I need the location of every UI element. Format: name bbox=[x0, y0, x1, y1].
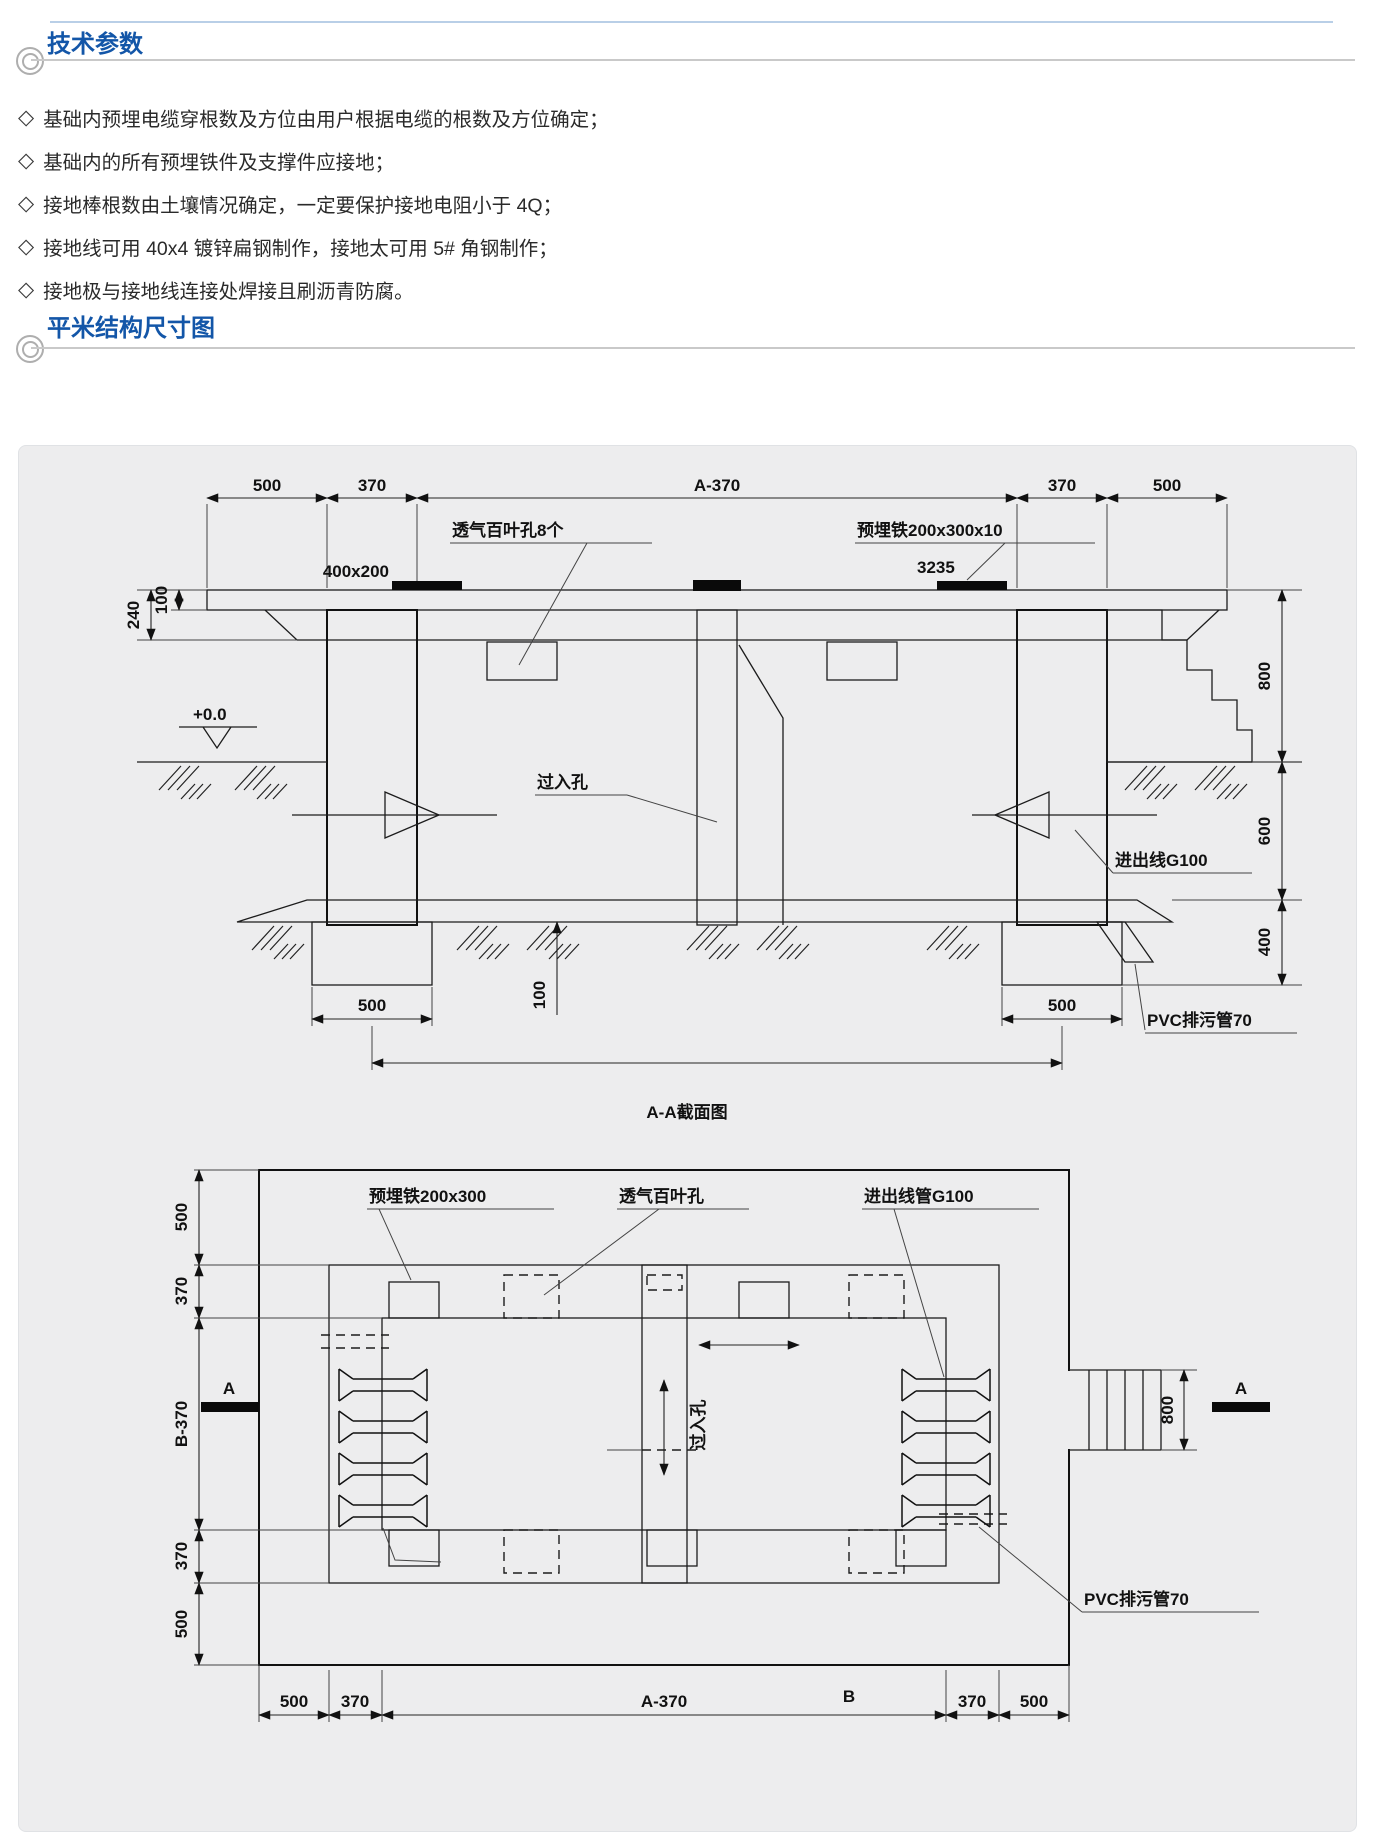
tech-params-list: ◇基础内预埋电缆穿根数及方位由用户根据电缆的根数及方位确定； ◇基础内的所有预埋… bbox=[18, 96, 609, 311]
bottom-dimension-chain: 500 500 bbox=[312, 987, 1122, 1070]
bottom-wall-elements bbox=[383, 1528, 946, 1573]
diamond-bullet-icon: ◇ bbox=[18, 234, 34, 259]
dim-800: 800 bbox=[1158, 1396, 1177, 1424]
section-marker-a-left: A bbox=[201, 1379, 259, 1412]
cable-spools-left bbox=[339, 1369, 427, 1527]
svg-text:370: 370 bbox=[172, 1277, 191, 1305]
access-label: 过入孔 bbox=[689, 1400, 708, 1451]
diamond-bullet-icon: ◇ bbox=[18, 191, 34, 216]
svg-text:500: 500 bbox=[172, 1203, 191, 1231]
slab-depth-dim: 100 bbox=[530, 922, 557, 1015]
dim-240: 240 bbox=[124, 601, 143, 629]
svg-text:500: 500 bbox=[1020, 1692, 1048, 1711]
svg-text:500: 500 bbox=[280, 1692, 308, 1711]
dim-100: 100 bbox=[152, 586, 171, 614]
dim-600: 600 bbox=[1255, 817, 1274, 845]
list-item: ◇接地棒根数由土壤情况确定，一定要保护接地电阻小于 4Q； bbox=[18, 182, 609, 225]
section-marker-b: B bbox=[843, 1687, 855, 1706]
dim-500-footing-left: 500 bbox=[358, 996, 386, 1015]
pvc-pipe bbox=[1097, 922, 1153, 962]
cable-sleeve-right bbox=[972, 792, 1157, 838]
drawing1-title: A-A截面图 bbox=[646, 1102, 727, 1122]
svg-text:B-370: B-370 bbox=[172, 1401, 191, 1447]
embedded-plate-left bbox=[392, 581, 462, 590]
svg-text:A-370: A-370 bbox=[641, 1692, 687, 1711]
dim-400: 400 bbox=[1255, 928, 1274, 956]
list-item: ◇接地线可用 40x4 镀锌扁钢制作，接地太可用 5# 角钢制作； bbox=[18, 225, 609, 268]
ring-icon bbox=[16, 335, 44, 363]
right-dimension-chain: 800 600 400 bbox=[1122, 590, 1302, 985]
vent-label: 透气百叶孔8个 bbox=[452, 520, 564, 540]
dim-500-footing-right: 500 bbox=[1048, 996, 1076, 1015]
svg-text:370: 370 bbox=[341, 1692, 369, 1711]
gline-label: 进出线G100 bbox=[1115, 850, 1208, 870]
list-item: ◇接地极与接地线连接处焊接且刷沥青防腐。 bbox=[18, 268, 609, 311]
embed-label: 预埋铁200x300 bbox=[369, 1186, 486, 1206]
vent-label: 透气百叶孔 bbox=[619, 1186, 704, 1206]
section1-rule bbox=[0, 46, 1355, 76]
plan-view-drawing: 过入孔 800 A A bbox=[49, 1130, 1289, 1830]
dim-500-left: 500 bbox=[253, 476, 281, 495]
svg-text:A: A bbox=[223, 1379, 235, 1398]
louver-vent-right bbox=[827, 642, 897, 680]
footing-left bbox=[312, 922, 432, 985]
louver-vent bbox=[849, 1275, 904, 1318]
center-pillar bbox=[697, 610, 783, 925]
bottom-dimension-chain: 500 370 A-370 370 500 B bbox=[259, 1665, 1069, 1722]
right-chute: 800 bbox=[1067, 1370, 1197, 1450]
svg-text:500: 500 bbox=[172, 1610, 191, 1638]
dim-a370: A-370 bbox=[694, 476, 740, 495]
list-item: ◇基础内预埋电缆穿根数及方位由用户根据电缆的根数及方位确定； bbox=[18, 96, 609, 139]
level-label: +0.0 bbox=[193, 705, 227, 724]
page-top-rule bbox=[50, 21, 1333, 23]
embed-plate bbox=[739, 1282, 789, 1318]
top-wall-elements bbox=[389, 1275, 904, 1318]
dim-370-left: 370 bbox=[358, 476, 386, 495]
diamond-bullet-icon: ◇ bbox=[18, 277, 34, 302]
svg-text:370: 370 bbox=[172, 1542, 191, 1570]
louver-vent-left bbox=[487, 642, 557, 680]
section-marker-a-right: A bbox=[1212, 1379, 1270, 1412]
access-hole: 过入孔 bbox=[607, 1345, 799, 1475]
svg-text:A: A bbox=[1235, 1379, 1247, 1398]
embed-label: 预埋铁200x300x10 bbox=[857, 520, 1003, 540]
document-page: 技术参数 ◇基础内预埋电缆穿根数及方位由用户根据电缆的根数及方位确定； ◇基础内… bbox=[0, 0, 1373, 1848]
callouts: 透气百叶孔8个 预埋铁200x300x10 3235 400x200 过入孔 进… bbox=[323, 520, 1297, 1033]
dim-370-right: 370 bbox=[1048, 476, 1076, 495]
stepped-brick-wall bbox=[1107, 610, 1302, 799]
diagram-panel: 500 370 A-370 370 500 100 240 bbox=[18, 445, 1357, 1832]
pillar-cap-plate bbox=[693, 580, 741, 591]
dim-500-right: 500 bbox=[1153, 476, 1181, 495]
plate-label: 400x200 bbox=[323, 562, 389, 581]
left-dimension-chain: 100 240 bbox=[124, 586, 297, 640]
pvc-label: PVC排污管70 bbox=[1084, 1589, 1189, 1609]
pvc-label: PVC排污管70 bbox=[1147, 1010, 1252, 1030]
diamond-bullet-icon: ◇ bbox=[18, 148, 34, 173]
ring-icon bbox=[16, 47, 44, 75]
louver-vent bbox=[504, 1275, 559, 1318]
svg-text:370: 370 bbox=[958, 1692, 986, 1711]
diamond-bullet-icon: ◇ bbox=[18, 105, 34, 130]
num-label: 3235 bbox=[917, 558, 955, 577]
list-item: ◇基础内的所有预埋铁件及支撑件应接地； bbox=[18, 139, 609, 182]
embed-plate bbox=[389, 1282, 439, 1318]
brick-wall-left bbox=[327, 610, 417, 925]
embed-plate bbox=[647, 1530, 697, 1566]
ground-level-left: +0.0 bbox=[137, 705, 327, 799]
section-view-drawing: 500 370 A-370 370 500 100 240 bbox=[67, 470, 1307, 1130]
gline-label: 进出线管G100 bbox=[864, 1186, 974, 1206]
cable-sleeve-left bbox=[292, 792, 497, 838]
brick-wall-right bbox=[1017, 610, 1107, 925]
access-label: 过入孔 bbox=[537, 773, 588, 792]
left-wall-pipe-stub bbox=[321, 1335, 389, 1348]
dim-100-bottom: 100 bbox=[530, 981, 549, 1009]
section2-rule bbox=[0, 334, 1355, 364]
pvc-pipe-stub bbox=[939, 1514, 1007, 1524]
dim-800: 800 bbox=[1255, 662, 1274, 690]
embedded-plate-right bbox=[937, 581, 1007, 590]
left-dimension-chain: 500 370 B-370 370 500 bbox=[172, 1170, 382, 1665]
base-slab bbox=[237, 900, 1172, 985]
louver-vent bbox=[504, 1530, 559, 1573]
